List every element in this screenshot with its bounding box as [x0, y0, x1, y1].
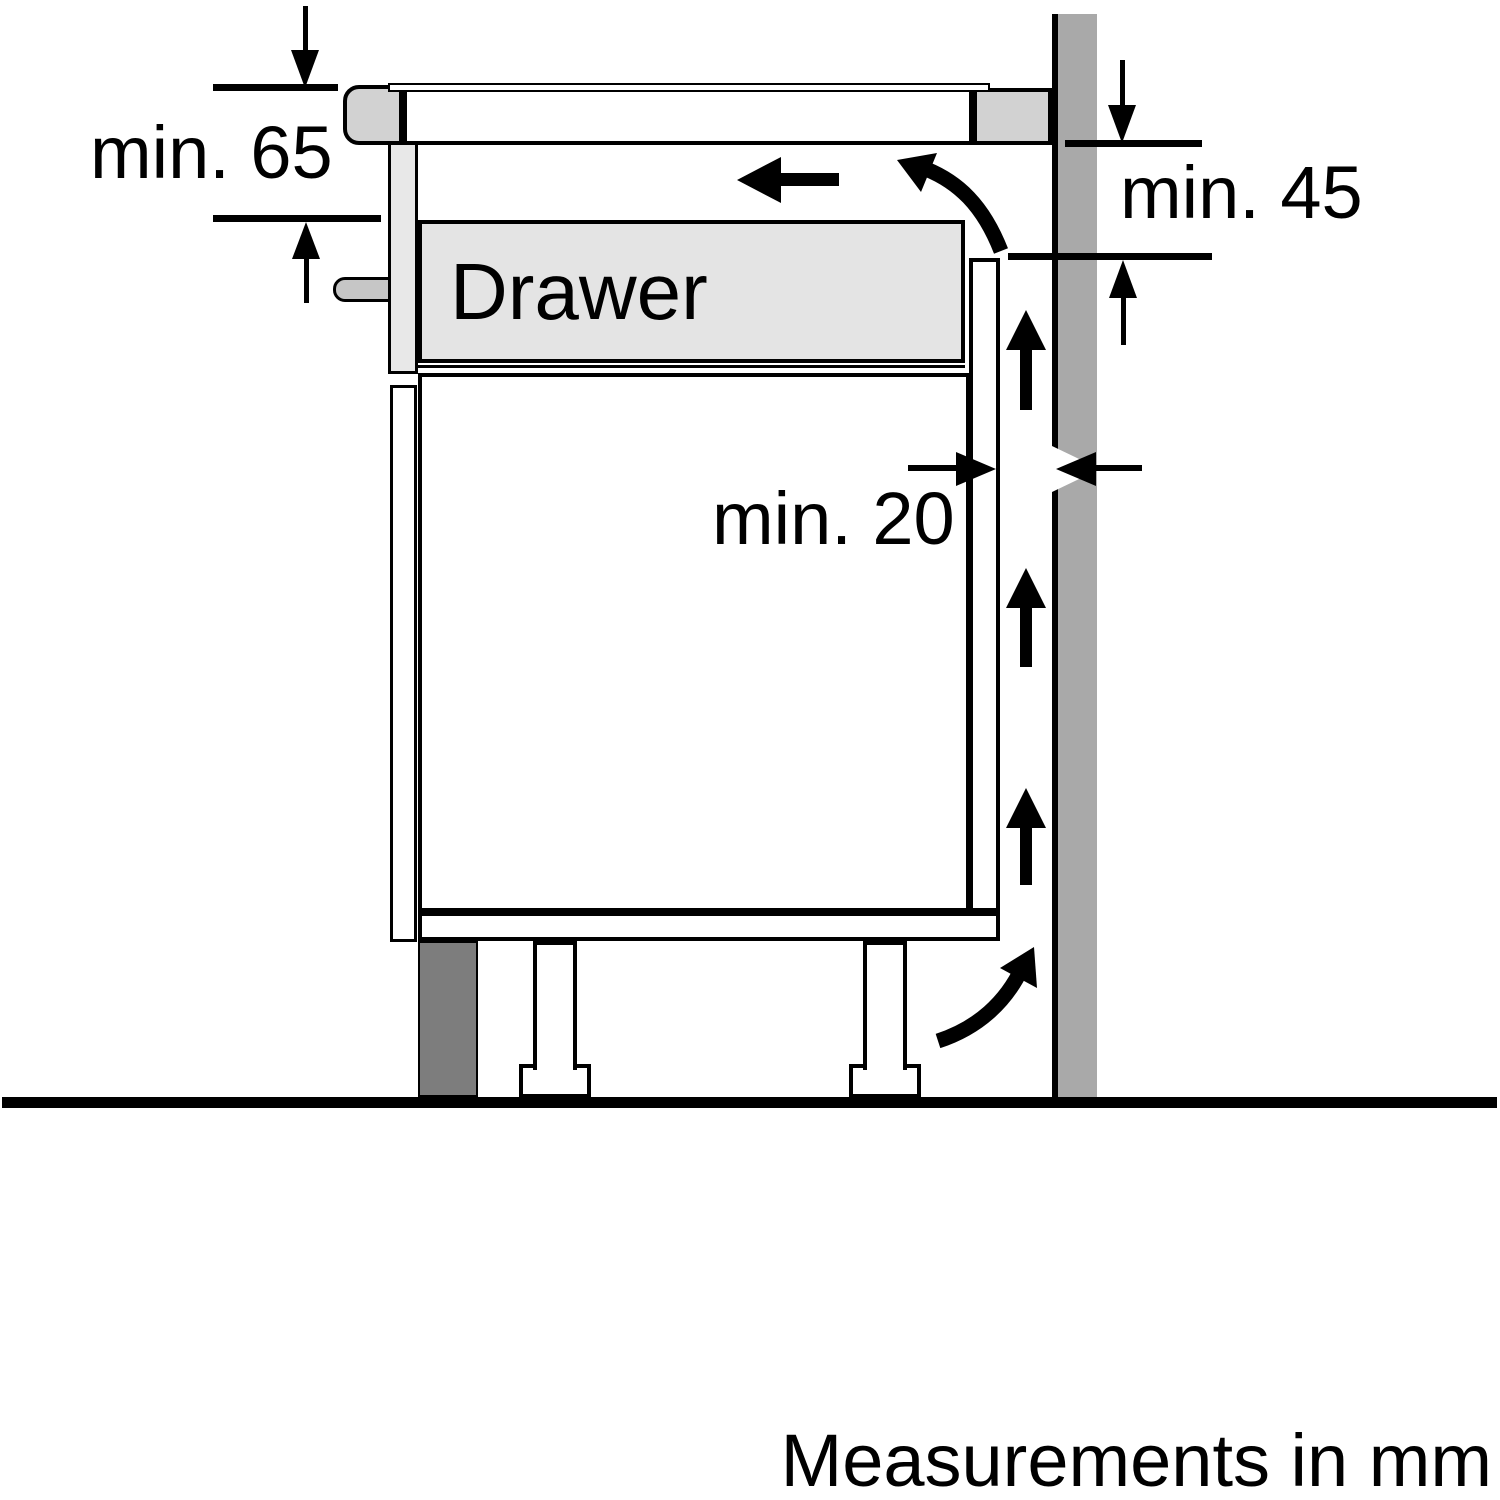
clearance-label-min-45: min. 45 — [1120, 156, 1363, 230]
dim-arrow-down-icon — [291, 50, 319, 88]
airflow-up-arrow-icon — [1006, 788, 1046, 828]
dim65-up-arrow-shaft — [304, 259, 309, 303]
airflow-up-arrow-shaft — [1020, 608, 1032, 667]
airflow-left-arrow-icon — [737, 157, 781, 203]
units-note: Measurements in mm — [781, 1424, 1492, 1498]
dim-arrow-up-icon — [1109, 260, 1137, 298]
wall — [1052, 14, 1097, 1097]
dim45-bottom-line — [1008, 253, 1212, 260]
cabinet-rear-vent-panel — [969, 258, 1000, 912]
fixing-screw — [333, 277, 393, 302]
dim-arrow-up-icon — [292, 222, 320, 259]
airflow-left-arrow-shaft — [777, 173, 839, 186]
cabinet-bottom-panel — [418, 912, 1000, 941]
dim65-down-arrow-shaft — [303, 6, 308, 52]
plinth — [418, 941, 478, 1097]
installation-clearance-diagram: min. 65 min. 45 min. 20 Drawer Measureme… — [0, 0, 1500, 1500]
front-leg — [533, 941, 577, 1070]
hob-glass-surface — [388, 83, 990, 92]
dim65-top-line — [213, 84, 338, 91]
dim-arrow-down-icon — [1108, 105, 1136, 143]
cabinet-front-panel — [390, 385, 417, 942]
clearance-label-min-20: min. 20 — [712, 482, 955, 556]
airflow-up-arrow-shaft — [1020, 828, 1032, 885]
hob-front-trim — [343, 85, 403, 145]
cabinet-body — [418, 373, 970, 912]
drawer-label: Drawer — [450, 252, 708, 332]
dim20-left-arrow-shaft — [1094, 465, 1142, 471]
airflow-curve-top-head — [897, 153, 937, 192]
dim45-up-arrow-shaft — [1121, 298, 1126, 345]
hob-mounting-rail — [388, 141, 418, 374]
floor-line — [2, 1097, 1497, 1108]
clearance-label-min-65: min. 65 — [90, 116, 333, 190]
airflow-up-arrow-shaft — [1020, 350, 1032, 410]
dim65-bottom-line — [213, 215, 381, 222]
dim45-down-arrow-shaft — [1120, 60, 1125, 108]
rear-leg — [863, 941, 907, 1070]
drawer-runner-line — [418, 365, 965, 368]
airflow-curve-bottom-icon — [938, 968, 1022, 1041]
airflow-curve-bottom-head — [1000, 947, 1037, 988]
worktop — [403, 88, 973, 145]
hob-rear-trim — [973, 88, 1052, 145]
airflow-up-arrow-icon — [1006, 568, 1046, 608]
airflow-up-arrow-icon — [1006, 310, 1046, 350]
